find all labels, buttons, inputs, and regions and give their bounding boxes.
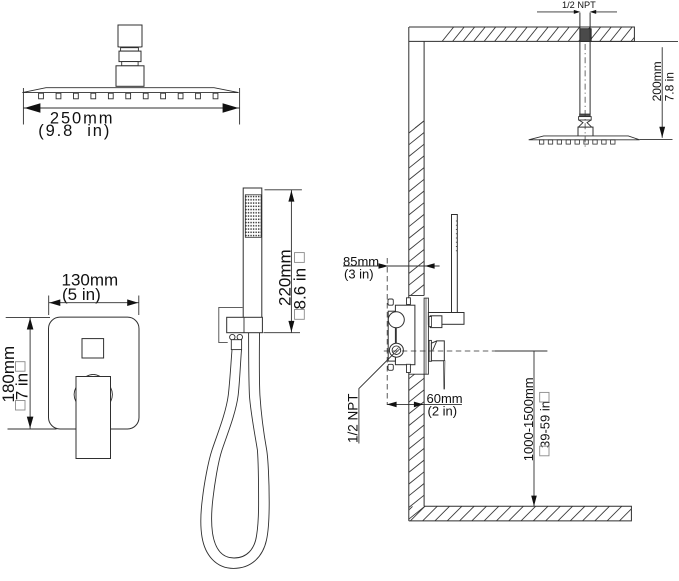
svg-text:7 in: 7 in (12, 373, 31, 400)
svg-text:(2 in): (2 in) (428, 404, 458, 419)
svg-text:(3 in): (3 in) (344, 267, 374, 282)
svg-text:1/2 NPT: 1/2 NPT (562, 0, 596, 10)
svg-text:1000-1500mm: 1000-1500mm (521, 377, 536, 461)
svg-text:(9.8 in): (9.8 in) (38, 122, 111, 140)
svg-text:8.6 in: 8.6 in (290, 268, 309, 310)
svg-text:39-59 in: 39-59 in (537, 401, 552, 448)
svg-text:1/2 NPT: 1/2 NPT (345, 393, 360, 443)
svg-text:(5 in): (5 in) (62, 285, 101, 304)
svg-text:7.8 in: 7.8 in (662, 72, 676, 101)
